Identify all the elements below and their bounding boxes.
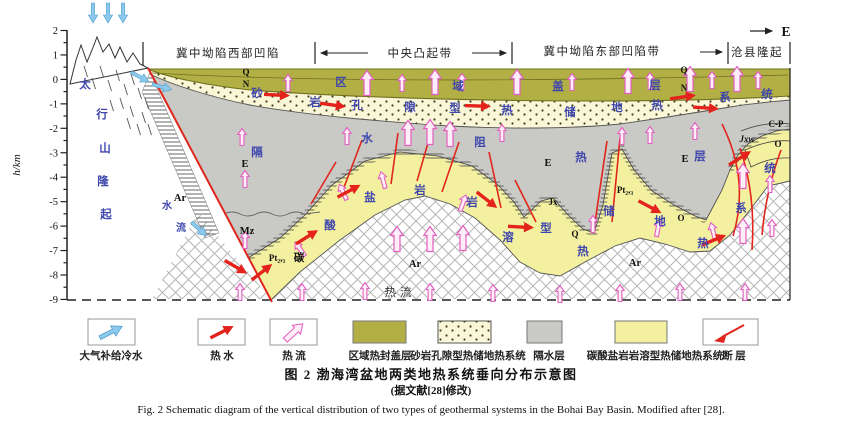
diagram-label: Q [242, 67, 249, 77]
diagram-label: 隔 [251, 145, 263, 159]
diagram-label: Jx [549, 197, 559, 207]
diagram-label: 层 [693, 150, 706, 163]
mountain-hatch-stroke [127, 118, 131, 129]
diagram-label: Q [680, 65, 687, 75]
diagram-label: 流 [176, 221, 186, 234]
diagram-label: 岩 [465, 195, 478, 209]
legend-label-aquiclude: 隔水层 [533, 349, 565, 362]
caption-source-note: (据文献[28]修改) [391, 383, 472, 397]
axis-tick-label: -1 [49, 99, 58, 110]
zone-label-west-sag: 冀中坳陷西部凹陷 [176, 46, 280, 60]
diagram-label: Ar [409, 259, 422, 270]
cold-water-arrow [88, 3, 97, 23]
diagram-label: O [677, 213, 684, 223]
diagram-label: 热 [697, 236, 709, 250]
diagram-label: 统 [764, 161, 776, 175]
diagram-label: 岩 [413, 183, 426, 197]
diagram-label: 储 [564, 105, 576, 119]
diagram-label: O [774, 139, 781, 149]
diagram-label: 热 [501, 103, 513, 117]
diagram-label: 域 [452, 79, 464, 93]
axis-tick-label: -6 [49, 222, 58, 233]
geothermal-cross-section-figure: 210-1-2-3-4-5-6-7-8-9 h/km 冀中坳陷西部凹陷 中央凸起… [0, 0, 863, 429]
axis-tick-label: -9 [49, 295, 58, 306]
diagram-label: Jxw [738, 134, 755, 144]
mountain-hatch-stroke [137, 124, 141, 135]
diagram-label: Q [571, 229, 578, 239]
diagram-label: 起 [99, 207, 112, 221]
diagram-label: Pt₂,₃ [617, 185, 633, 195]
zone-label-east-sag: 冀中坳陷东部凹陷带 [544, 44, 661, 58]
legend-label-carbonate-system: 碳酸盐岩岩溶型热储地热系统 [587, 349, 724, 362]
zone-label-central-uplift: 中央凸起带 [388, 47, 453, 60]
diagram-label: 隙 [404, 100, 416, 114]
diagram-label: 系 [735, 201, 747, 215]
diagram-label: 岩 [308, 95, 321, 109]
diagram-label: 太 [78, 77, 91, 91]
diagram-label: 酸 [324, 218, 336, 232]
zone-label-cangxian-uplift: 沧县隆起 [731, 45, 783, 59]
axis-tick-label: -3 [49, 148, 58, 159]
cold-water-arrow [118, 3, 127, 23]
diagram-label: 储 [603, 204, 615, 218]
diagram-label: 水 [161, 199, 173, 212]
axis-tick-label: 1 [53, 50, 58, 61]
legend: 大气补给冷水 热 水 热 流 区域热封盖层 砂岩孔隙型热储地热系统 隔水层 碳酸… [80, 319, 759, 362]
axis-tick-label: 2 [53, 26, 58, 37]
diagram-label: 型 [540, 221, 552, 235]
axis-tick-label: -5 [49, 197, 58, 208]
aquiclude-swatch [527, 321, 562, 343]
diagram-label: 盖 [552, 79, 564, 93]
diagram-label: 溶 [502, 230, 514, 244]
mountain-hatch-stroke [142, 112, 146, 123]
diagram-label: 水 [361, 131, 373, 145]
geology-layers [142, 69, 790, 300]
diagram-label: 盐 [364, 190, 376, 204]
diagram-label: 统 [761, 87, 773, 101]
mountain-hatch-stroke [108, 80, 112, 91]
mountain-hatch-stroke [138, 88, 142, 99]
diagram-label: 型 [449, 101, 461, 115]
mountain-hatch-stroke [148, 124, 152, 135]
caption-chinese: 图 2 渤海湾盆地两类地热系统垂向分布示意图 [284, 367, 577, 382]
diagram-label: E [681, 154, 688, 165]
diagram-label: 阻 [474, 135, 486, 149]
axis-tick-label: -4 [49, 173, 58, 184]
caption-english: Fig. 2 Schematic diagram of the vertical… [137, 404, 724, 416]
diagram-label: C-P [769, 119, 784, 129]
diagram-label: 碳 [294, 251, 305, 264]
captions: 图 2 渤海湾盆地两类地热系统垂向分布示意图 (据文献[28]修改) Fig. … [137, 367, 724, 416]
diagram-label: 系 [719, 90, 731, 104]
diagram-label: N [681, 83, 688, 93]
cap-layer-swatch [353, 321, 406, 343]
legend-label-heat-flow: 热 流 [282, 349, 306, 362]
diagram-label: 热 [651, 98, 663, 112]
diagram-label: 热 [577, 244, 589, 258]
legend-label-cap-layer: 区域热封盖层 [349, 349, 412, 362]
axis-tick-label: -8 [49, 271, 58, 282]
diagram-label: 孔 [351, 99, 363, 112]
axis-tick-label: -7 [49, 246, 58, 257]
diagram-label: 区 [335, 76, 347, 89]
diagram-label: 隆 [97, 174, 109, 188]
axis-ticks: 210-1-2-3-4-5-6-7-8-9 [49, 26, 67, 306]
legend-label-cold-water: 大气补给冷水 [80, 349, 143, 362]
diagram-label: 地 [611, 100, 623, 114]
mountain-hatch-stroke [130, 106, 134, 117]
mountain-hatch-stroke [120, 98, 124, 109]
mountain-hatch-stroke [124, 84, 128, 95]
legend-label-fault: 断 层 [722, 349, 746, 362]
diagram-label: N [243, 79, 250, 89]
mountain-hatch-stroke [92, 78, 96, 89]
carbonate-swatch [615, 321, 667, 343]
legend-label-sandstone-system: 砂岩孔隙型热储地热系统 [409, 349, 526, 362]
diagram-label: Ar [174, 193, 187, 204]
diagram-label: 砂 [251, 86, 263, 100]
axis-tick-label: -2 [49, 124, 58, 135]
mountain-hatch-stroke [110, 100, 114, 111]
diagram-label: Pt₂,₃ [269, 253, 285, 263]
diagram-label: 层 [648, 79, 661, 92]
diagram-label: 热流 [385, 285, 416, 299]
diagram-label: E [241, 159, 248, 170]
structural-zone-header: 冀中坳陷西部凹陷 中央凸起带 冀中坳陷东部凹陷带 沧县隆起 E [143, 24, 791, 66]
east-direction-label: E [781, 24, 790, 39]
diagram-label: Mz [240, 226, 255, 237]
diagram-label: 山 [99, 141, 111, 155]
diagram-label: 行 [95, 107, 108, 121]
axis-label: h/km [11, 154, 23, 175]
sandstone-swatch-dots [438, 321, 491, 343]
axis-tick-label: 0 [53, 75, 58, 86]
diagram-label: 地 [654, 214, 666, 228]
legend-label-hot-water: 热 水 [210, 349, 234, 362]
diagram-label: Ar [629, 258, 642, 269]
diagram-label: 热 [575, 150, 587, 164]
cold-water-arrow [103, 3, 112, 23]
diagram-label: E [544, 158, 551, 169]
